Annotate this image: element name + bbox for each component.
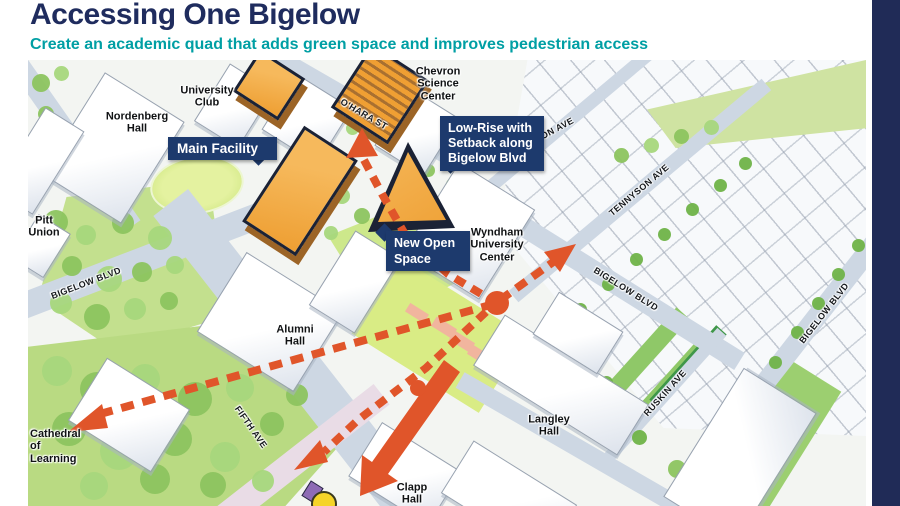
campus-map: O'HARA ST TTON AVE TENNYSON AVE BIGELOW … bbox=[28, 60, 866, 506]
yellow-circle-marker bbox=[311, 491, 337, 506]
label-university-club: University Club bbox=[180, 85, 233, 110]
tree bbox=[324, 226, 338, 240]
tree bbox=[644, 138, 659, 153]
label-clapp-hall: Clapp Hall bbox=[397, 482, 428, 506]
tree bbox=[852, 239, 865, 252]
label-chevron-science-center: Chevron Science Center bbox=[416, 66, 461, 103]
label-langley-hall: Langley Hall bbox=[528, 414, 570, 439]
tree bbox=[714, 179, 727, 192]
tree bbox=[124, 298, 146, 320]
tree bbox=[614, 148, 629, 163]
tree bbox=[769, 356, 782, 369]
path-node-circle bbox=[485, 291, 509, 315]
tree bbox=[166, 256, 184, 274]
tree bbox=[76, 225, 96, 245]
tree bbox=[832, 268, 845, 281]
callout-main-facility: Main Facility bbox=[168, 137, 277, 160]
tree bbox=[658, 228, 671, 241]
tree bbox=[739, 157, 752, 170]
tree bbox=[632, 430, 647, 445]
tree bbox=[686, 203, 699, 216]
callout-new-open-space: New Open Space bbox=[386, 231, 470, 271]
tree bbox=[84, 304, 110, 330]
label-cathedral-of-learning: Cathedral of Learning bbox=[30, 428, 81, 465]
label-nordenberg-hall: Nordenberg Hall bbox=[106, 111, 168, 136]
tree bbox=[260, 412, 284, 436]
tree bbox=[200, 472, 226, 498]
label-wyndham: Wyndham University Center bbox=[470, 227, 523, 264]
tree bbox=[54, 66, 69, 81]
right-navy-bar bbox=[872, 0, 900, 506]
page-title: Accessing One Bigelow bbox=[30, 0, 360, 32]
label-pitt-union: Pitt Union bbox=[28, 215, 59, 240]
bottom-center-building bbox=[441, 440, 577, 506]
tree bbox=[42, 356, 72, 386]
tree bbox=[62, 256, 82, 276]
tree bbox=[80, 472, 108, 500]
page-subtitle: Create an academic quad that adds green … bbox=[30, 36, 648, 54]
label-alumni-hall: Alumni Hall bbox=[276, 324, 313, 349]
tree bbox=[704, 120, 719, 135]
tree bbox=[148, 226, 172, 250]
tree bbox=[354, 208, 370, 224]
slide: Accessing One Bigelow Create an academic… bbox=[0, 0, 900, 506]
path-node-small bbox=[410, 380, 426, 396]
tree bbox=[252, 470, 274, 492]
tree bbox=[226, 374, 254, 402]
tree bbox=[160, 292, 178, 310]
tree bbox=[674, 129, 689, 144]
tree bbox=[630, 253, 643, 266]
callout-low-rise: Low-Rise with Setback along Bigelow Blvd bbox=[440, 116, 544, 171]
tree bbox=[32, 74, 50, 92]
tree bbox=[132, 262, 152, 282]
tree bbox=[210, 442, 240, 472]
